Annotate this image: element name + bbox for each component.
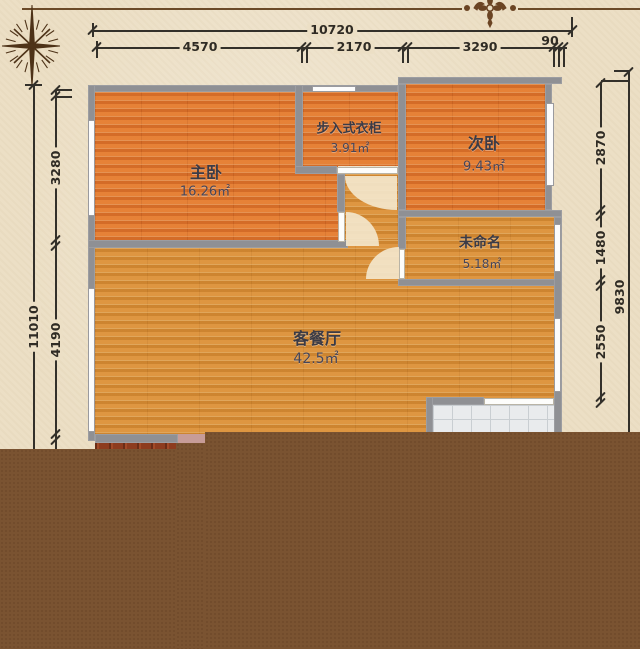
dim-tick — [407, 49, 409, 63]
room-name-label: 未命名 — [459, 236, 501, 250]
room-name-label: 主卧 — [190, 165, 222, 181]
unrendered-overlay — [0, 449, 176, 649]
dim-label-right-seg2: 1480 — [595, 228, 608, 269]
dim-label-left-seg1: 3280 — [50, 148, 63, 189]
dim-tick — [92, 23, 94, 37]
dim-tick — [306, 49, 308, 63]
wall-segment-pink — [178, 434, 205, 443]
window[interactable] — [554, 224, 561, 272]
room-bathroom-tiles[interactable] — [433, 405, 554, 435]
dim-tick — [402, 49, 404, 63]
wall — [95, 434, 178, 443]
wall — [398, 84, 406, 210]
ornament-dot-right — [510, 5, 516, 11]
wall — [426, 397, 484, 405]
wall — [398, 210, 562, 217]
dim-tick — [56, 89, 72, 91]
dim-label-right-seg3: 2550 — [595, 322, 608, 363]
sliding-door[interactable] — [484, 398, 554, 405]
ornament-divider-line-left — [22, 8, 462, 10]
room-area-label: 42.5㎡ — [293, 352, 338, 366]
dim-tick — [601, 80, 629, 82]
dim-label-top-seg4: 90 — [538, 35, 561, 48]
dim-line — [55, 90, 57, 449]
wall — [295, 166, 337, 174]
window[interactable] — [554, 318, 561, 392]
dim-label-left-total: 11010 — [28, 302, 41, 352]
wall — [398, 217, 406, 249]
room-area-label: 9.43㎡ — [463, 161, 505, 174]
dim-tick — [96, 41, 98, 58]
dim-label-top-seg3: 3290 — [460, 41, 501, 54]
wall — [295, 85, 303, 174]
door-leaf[interactable] — [338, 212, 345, 242]
compass-rose-icon — [0, 2, 69, 88]
wall — [88, 240, 348, 248]
room-name-label: 次卧 — [468, 136, 500, 152]
dim-tick — [563, 49, 565, 67]
dim-tick — [56, 96, 72, 98]
dim-label-top-seg1: 4570 — [180, 41, 221, 54]
dim-tick — [571, 17, 573, 37]
dim-line — [628, 72, 630, 438]
window[interactable] — [88, 120, 95, 216]
dim-tick — [25, 84, 42, 86]
dim-tick — [614, 70, 630, 72]
room-area-label: 5.18㎡ — [463, 258, 502, 270]
window[interactable] — [312, 86, 356, 92]
unrendered-overlay — [176, 443, 205, 649]
dim-label-top-seg2: 2170 — [334, 41, 375, 54]
floor-plan-canvas: 主卧 16.26㎡ 步入式衣柜 3.91㎡ 次卧 9.43㎡ 未命名 5.18㎡… — [0, 0, 640, 649]
ornament-divider-line-right — [518, 8, 640, 10]
room-area-label: 16.26㎡ — [180, 186, 230, 199]
window[interactable] — [546, 103, 554, 186]
wall — [398, 279, 562, 286]
room-name-label: 客餐厅 — [293, 331, 341, 347]
dim-tick — [558, 49, 560, 67]
dim-line — [33, 85, 35, 449]
damask-flourish-icon — [470, 0, 510, 28]
room-name-label: 步入式衣柜 — [316, 123, 381, 136]
dim-label-right-seg1: 2870 — [595, 128, 608, 169]
dim-label-left-seg2: 4190 — [50, 320, 63, 361]
window[interactable] — [88, 288, 95, 432]
wall — [337, 174, 345, 212]
door-leaf[interactable] — [399, 249, 405, 279]
room-area-label: 3.91㎡ — [331, 142, 370, 154]
dim-label-top-total: 10720 — [307, 24, 357, 37]
wall — [398, 77, 562, 84]
unrendered-overlay — [205, 432, 640, 649]
door-leaf[interactable] — [337, 167, 398, 174]
dim-label-right-total: 9830 — [614, 277, 627, 318]
dim-tick — [553, 49, 555, 67]
dim-tick — [301, 49, 303, 63]
